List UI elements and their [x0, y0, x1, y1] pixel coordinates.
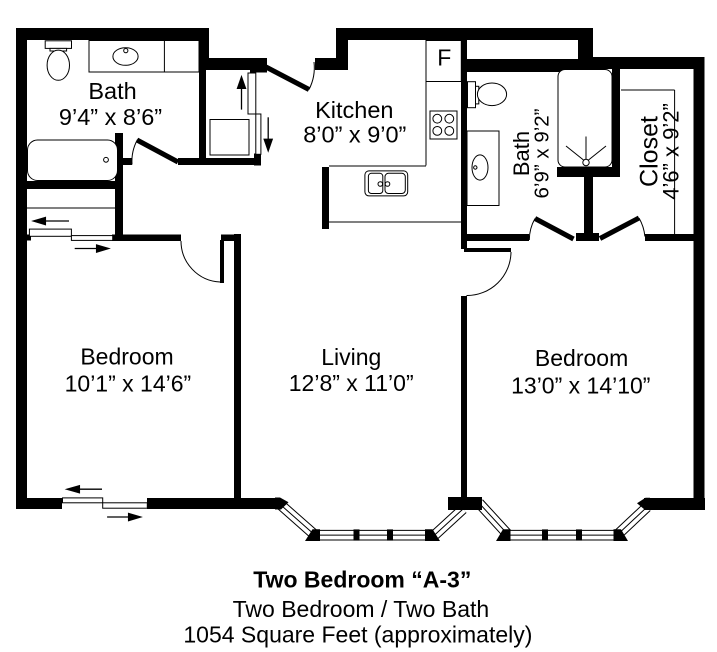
svg-text:Bath: Bath	[88, 78, 136, 104]
svg-text:Closet4’6” x 9’2”: Closet4’6” x 9’2”	[636, 103, 684, 200]
svg-text:8’0” x 9’0”: 8’0” x 9’0”	[303, 121, 406, 147]
svg-text:13’0” x 14’10”: 13’0” x 14’10”	[511, 373, 650, 399]
svg-text:Bedroom: Bedroom	[80, 344, 173, 370]
svg-text:Two Bedroom “A-3”: Two Bedroom “A-3”	[253, 567, 471, 593]
svg-text:F: F	[437, 45, 451, 71]
svg-text:Kitchen: Kitchen	[315, 97, 393, 123]
svg-text:Living: Living	[321, 344, 381, 370]
svg-text:Bedroom: Bedroom	[535, 345, 628, 371]
svg-text:10’1” x 14’6”: 10’1” x 14’6”	[65, 371, 192, 397]
svg-text:12’8” x 11’0”: 12’8” x 11’0”	[289, 370, 414, 396]
svg-text:Two Bedroom / Two Bath: Two Bedroom / Two Bath	[233, 596, 490, 622]
svg-text:9’4” x 8’6”: 9’4” x 8’6”	[59, 104, 162, 130]
svg-text:1054 Square Feet (approximatel: 1054 Square Feet (approximately)	[183, 622, 532, 648]
